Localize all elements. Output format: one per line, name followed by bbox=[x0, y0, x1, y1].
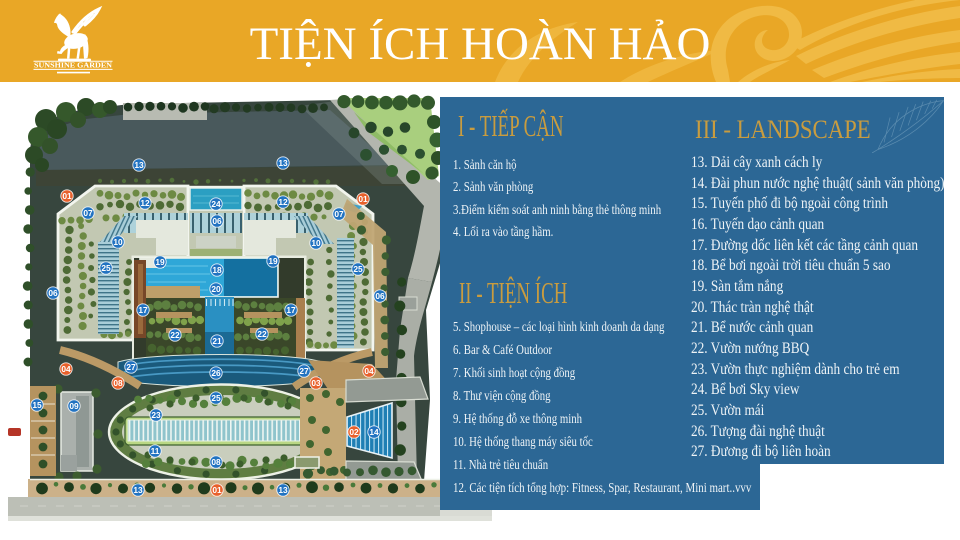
svg-text:08: 08 bbox=[113, 378, 123, 388]
svg-text:06: 06 bbox=[212, 216, 222, 226]
svg-text:25: 25 bbox=[211, 393, 221, 403]
svg-text:23: 23 bbox=[151, 410, 161, 420]
svg-text:24: 24 bbox=[211, 199, 221, 209]
svg-text:11: 11 bbox=[151, 446, 160, 456]
svg-text:21: 21 bbox=[212, 336, 222, 346]
svg-text:02: 02 bbox=[349, 427, 359, 437]
svg-text:03: 03 bbox=[311, 378, 321, 388]
svg-text:25: 25 bbox=[353, 264, 363, 274]
svg-text:15: 15 bbox=[32, 400, 42, 410]
svg-text:25: 25 bbox=[101, 263, 111, 273]
svg-text:12: 12 bbox=[140, 198, 150, 208]
svg-text:14: 14 bbox=[369, 427, 379, 437]
svg-text:09: 09 bbox=[69, 401, 79, 411]
svg-text:04: 04 bbox=[364, 366, 374, 376]
svg-text:19: 19 bbox=[155, 257, 165, 267]
svg-text:10: 10 bbox=[113, 237, 123, 247]
svg-text:13: 13 bbox=[133, 485, 143, 495]
svg-text:06: 06 bbox=[375, 291, 385, 301]
svg-text:06: 06 bbox=[48, 288, 58, 298]
svg-text:01: 01 bbox=[62, 191, 72, 201]
svg-text:17: 17 bbox=[138, 305, 148, 315]
svg-text:01: 01 bbox=[212, 485, 222, 495]
svg-text:27: 27 bbox=[299, 366, 309, 376]
svg-text:19: 19 bbox=[268, 256, 278, 266]
svg-text:17: 17 bbox=[286, 305, 296, 315]
svg-text:13: 13 bbox=[278, 485, 288, 495]
svg-text:27: 27 bbox=[126, 362, 136, 372]
svg-text:18: 18 bbox=[212, 265, 222, 275]
svg-text:20: 20 bbox=[211, 284, 221, 294]
svg-text:13: 13 bbox=[278, 158, 288, 168]
svg-text:04: 04 bbox=[61, 364, 71, 374]
svg-text:10: 10 bbox=[311, 238, 321, 248]
svg-text:07: 07 bbox=[334, 209, 344, 219]
svg-text:12: 12 bbox=[278, 197, 288, 207]
svg-text:13: 13 bbox=[134, 160, 144, 170]
svg-text:22: 22 bbox=[257, 329, 267, 339]
svg-text:08: 08 bbox=[211, 457, 221, 467]
svg-text:01: 01 bbox=[358, 194, 368, 204]
svg-text:07: 07 bbox=[83, 208, 93, 218]
svg-text:22: 22 bbox=[170, 330, 180, 340]
svg-text:26: 26 bbox=[211, 368, 221, 378]
